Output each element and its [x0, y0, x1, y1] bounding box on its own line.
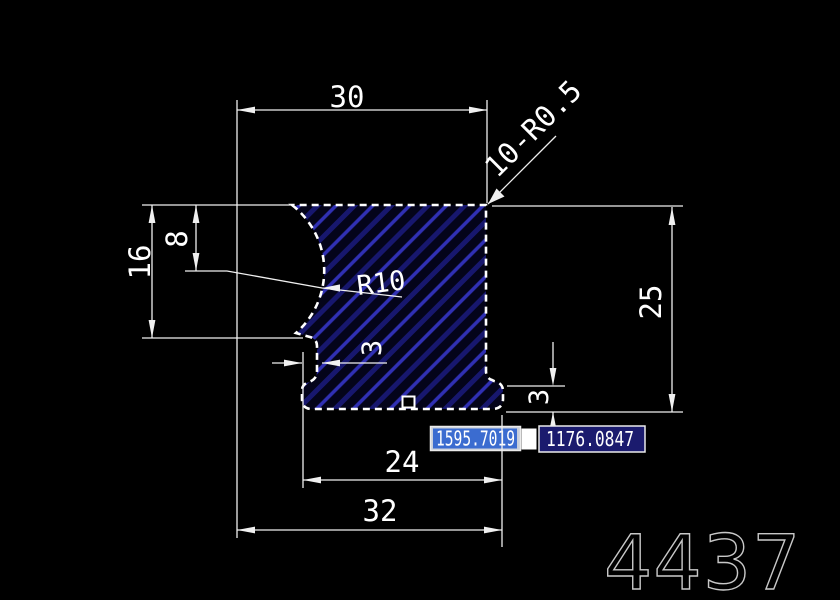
dim-label-16: 16: [123, 245, 157, 280]
dim-label-30: 30: [330, 80, 365, 114]
dim-label-25: 25: [634, 285, 668, 320]
cad-canvas: 30 16 8 R10 10-R0.5 3 3: [0, 0, 840, 600]
watermark-number: 4437: [604, 518, 801, 600]
x-coordinate-value[interactable]: 1595.7019: [436, 427, 515, 451]
cad-viewport: 30 16 8 R10 10-R0.5 3 3: [0, 0, 840, 600]
dim-label-3-lip: 3: [524, 389, 555, 405]
dim-label-r10: R10: [355, 265, 407, 302]
dim-label-32: 32: [363, 494, 398, 528]
dim-label-24: 24: [385, 445, 420, 479]
dim-label-3-wall: 3: [357, 340, 388, 356]
profile-section[interactable]: [292, 205, 503, 409]
bottom-groove-notch: [403, 397, 415, 408]
dim-label-8: 8: [160, 230, 194, 247]
y-coordinate-value[interactable]: 1176.0847: [546, 427, 634, 451]
input-cursor-block: [522, 429, 537, 450]
profile-hatch-area: [292, 205, 503, 409]
